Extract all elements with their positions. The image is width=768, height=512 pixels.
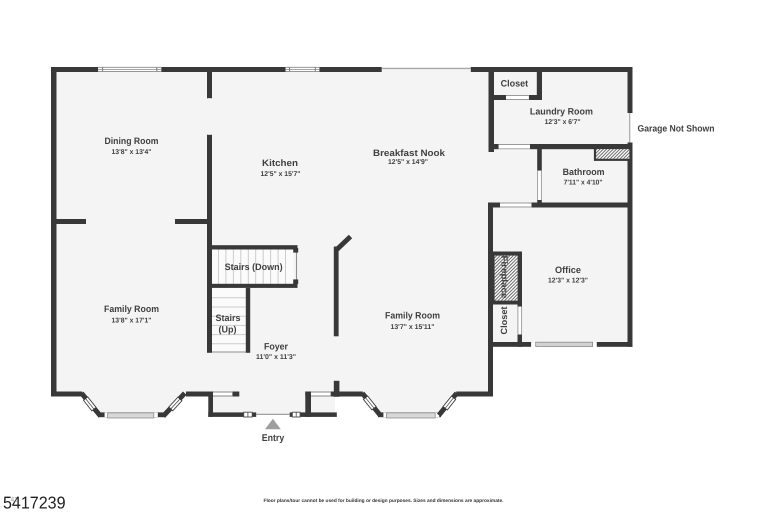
svg-text:Closet: Closet bbox=[501, 79, 529, 89]
svg-text:Family Room: Family Room bbox=[385, 310, 440, 320]
svg-text:12'5" x 14'9": 12'5" x 14'9" bbox=[388, 159, 428, 166]
svg-text:Entry: Entry bbox=[262, 433, 285, 444]
svg-text:41: 41 bbox=[11, 497, 19, 504]
svg-text:12'5" x 15'7": 12'5" x 15'7" bbox=[261, 171, 301, 178]
svg-text:Laundry Room: Laundry Room bbox=[530, 106, 593, 116]
svg-text:Foyer: Foyer bbox=[264, 341, 288, 351]
svg-text:Dining Room: Dining Room bbox=[105, 136, 159, 146]
svg-text:Office: Office bbox=[555, 265, 581, 275]
svg-text:Family Room: Family Room bbox=[104, 304, 159, 314]
svg-text:11'0" x 11'3": 11'0" x 11'3" bbox=[256, 354, 296, 361]
svg-text:Breakfast Nook: Breakfast Nook bbox=[373, 148, 446, 158]
svg-text:Floor plans/tour cannot be use: Floor plans/tour cannot be used for buil… bbox=[264, 498, 504, 504]
svg-text:7'11" x 4'10": 7'11" x 4'10" bbox=[564, 180, 603, 187]
svg-text:Closet: Closet bbox=[499, 307, 509, 335]
svg-text:12'3" x 12'3": 12'3" x 12'3" bbox=[548, 278, 588, 285]
svg-text:Stairs (Down): Stairs (Down) bbox=[225, 262, 283, 272]
svg-text:13'7" x 15'11": 13'7" x 15'11" bbox=[391, 324, 435, 331]
svg-text:Bathroom: Bathroom bbox=[563, 167, 605, 177]
svg-text:Kitchen: Kitchen bbox=[262, 158, 298, 168]
svg-text:Garage Not Shown: Garage Not Shown bbox=[638, 123, 715, 133]
svg-text:13'8" x 17'1": 13'8" x 17'1" bbox=[112, 318, 152, 325]
svg-text:13'8" x 13'4": 13'8" x 13'4" bbox=[112, 149, 152, 156]
svg-text:(Up): (Up) bbox=[219, 325, 237, 335]
svg-text:12'3" x 6'7": 12'3" x 6'7" bbox=[545, 119, 581, 126]
svg-text:Fireplace: Fireplace bbox=[500, 256, 510, 299]
svg-text:Stairs: Stairs bbox=[216, 313, 241, 323]
